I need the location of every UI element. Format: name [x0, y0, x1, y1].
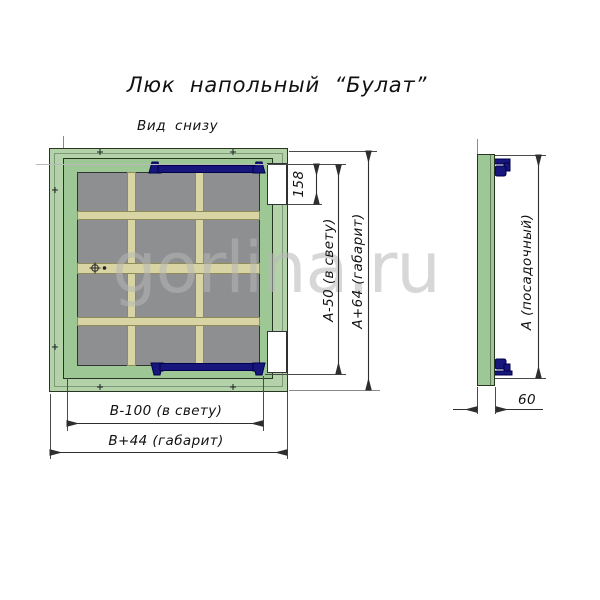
dim-clear-width-label: В-100 (в свету) — [110, 403, 223, 419]
dim-depth-label: 60 — [518, 392, 536, 408]
drawing-canvas: Люк напольный “Булат” Вид снизу — [0, 0, 600, 600]
side-hinge-bottom-hook — [504, 364, 510, 372]
page-title: Люк напольный “Булат” — [127, 73, 427, 97]
side-hinge-top-body — [495, 166, 506, 176]
side-hinge-top-hook — [504, 163, 510, 171]
side-hinge-bottom-plate — [493, 371, 512, 375]
side-hinge-top-plate — [493, 159, 510, 164]
dim-seat-height-label: А (посадочный) — [519, 214, 535, 330]
stiffener-rib-horizontal-3 — [77, 317, 260, 326]
view-label: Вид снизу — [137, 118, 218, 134]
dim-overall-width-label: В+44 (габарит) — [108, 433, 223, 449]
dim-overall-height-label: А+64 (габарит) — [350, 213, 366, 328]
watermark: gorlina.ru — [112, 227, 440, 309]
hinge-cutout-top — [267, 163, 287, 205]
side-view-profile-edge — [490, 155, 491, 385]
dim-158-label: 158 — [291, 171, 307, 198]
side-view-profile — [477, 154, 495, 386]
dim-clear-height-label: А-50 (в свету) — [321, 218, 337, 322]
stiffener-rib-horizontal-1 — [77, 211, 260, 220]
side-hinge-bottom-body — [495, 359, 506, 369]
hinge-cutout-bottom — [267, 331, 287, 373]
